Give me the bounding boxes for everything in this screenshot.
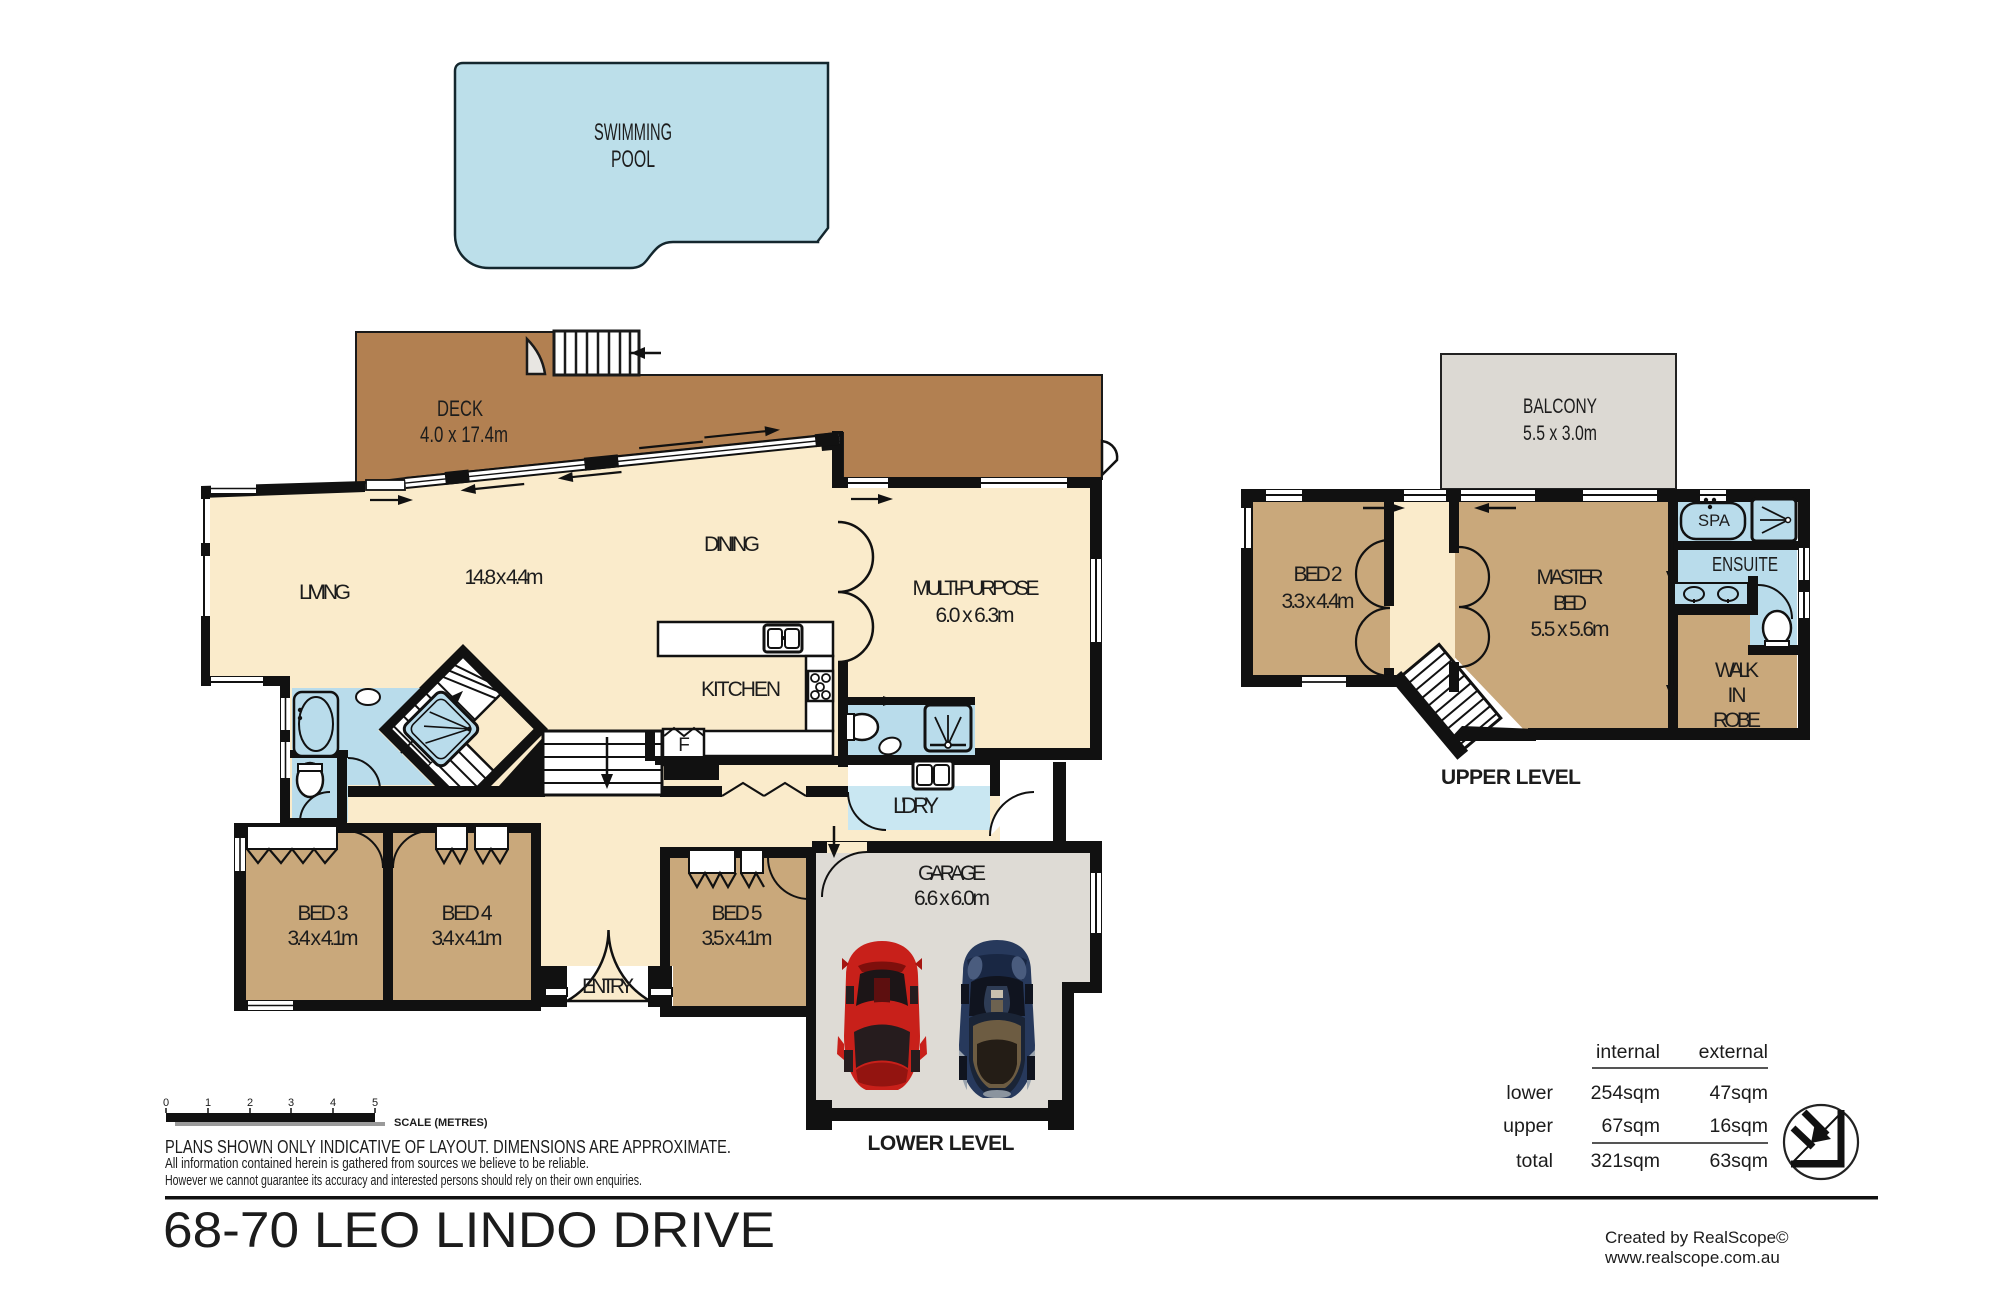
svg-text:67sqm: 67sqm <box>1601 1115 1660 1137</box>
svg-text:external: external <box>1699 1041 1768 1063</box>
svg-text:3.4 x 4.1m: 3.4 x 4.1m <box>288 927 359 950</box>
svg-text:Created by RealScope©: Created by RealScope© <box>1605 1228 1789 1247</box>
svg-text:16sqm: 16sqm <box>1709 1115 1768 1137</box>
svg-text:www.realscope.com.au: www.realscope.com.au <box>1604 1248 1780 1267</box>
svg-text:254sqm: 254sqm <box>1591 1082 1660 1104</box>
svg-text:BED 3: BED 3 <box>298 902 349 925</box>
svg-text:upper: upper <box>1503 1115 1553 1137</box>
svg-text:However we cannot guarantee it: However we cannot guarantee its accuracy… <box>165 1173 642 1189</box>
svg-text:3: 3 <box>288 1097 294 1109</box>
svg-text:BED 4: BED 4 <box>442 902 493 925</box>
svg-text:ENSUITE: ENSUITE <box>1712 554 1778 576</box>
svg-text:14.8 x 4.4m: 14.8 x 4.4m <box>465 566 544 589</box>
svg-text:4: 4 <box>330 1097 336 1109</box>
svg-text:6.0 x 6.3m: 6.0 x 6.3m <box>936 604 1015 627</box>
svg-text:GARAGE: GARAGE <box>918 862 986 885</box>
svg-text:5.5 x 3.0m: 5.5 x 3.0m <box>1523 422 1597 445</box>
svg-text:POOL: POOL <box>611 146 655 173</box>
svg-text:MULTI-PURPOSE: MULTI-PURPOSE <box>913 577 1040 600</box>
svg-text:5: 5 <box>372 1097 378 1109</box>
svg-text:BED: BED <box>1553 592 1587 615</box>
svg-text:3.5 x 4.1m: 3.5 x 4.1m <box>702 927 773 950</box>
svg-text:6.6 x 6.0m: 6.6 x 6.0m <box>914 887 990 910</box>
svg-text:68-70 LEO LINDO DRIVE: 68-70 LEO LINDO DRIVE <box>163 1202 775 1258</box>
svg-text:BED 5: BED 5 <box>712 902 763 925</box>
svg-text:ENTRY: ENTRY <box>582 975 634 998</box>
svg-text:F: F <box>678 735 690 756</box>
svg-text:DECK: DECK <box>437 396 483 421</box>
svg-text:total: total <box>1516 1150 1553 1172</box>
svg-text:3.4 x 4.1m: 3.4 x 4.1m <box>432 927 503 950</box>
svg-text:5.5 x 5.6m: 5.5 x 5.6m <box>1531 618 1610 641</box>
svg-text:internal: internal <box>1596 1041 1660 1063</box>
svg-text:3.3 x 4.4m: 3.3 x 4.4m <box>1282 590 1355 613</box>
svg-text:BALCONY: BALCONY <box>1523 395 1597 418</box>
svg-text:UPPER LEVEL: UPPER LEVEL <box>1441 766 1581 789</box>
svg-text:LIVING: LIVING <box>299 581 351 604</box>
svg-text:SCALE (METRES): SCALE (METRES) <box>394 1117 488 1129</box>
svg-text:BED 2: BED 2 <box>1294 563 1343 586</box>
svg-text:321sqm: 321sqm <box>1591 1150 1660 1172</box>
svg-text:47sqm: 47sqm <box>1709 1082 1768 1104</box>
svg-text:4.0 x 17.4m: 4.0 x 17.4m <box>420 422 508 447</box>
svg-text:L'DRY: L'DRY <box>893 793 939 818</box>
svg-text:lower: lower <box>1506 1082 1553 1104</box>
svg-text:1: 1 <box>205 1097 211 1109</box>
svg-text:IN: IN <box>1728 684 1747 707</box>
svg-text:DINING: DINING <box>704 533 760 556</box>
svg-text:SWIMMING: SWIMMING <box>594 119 672 146</box>
svg-text:LOWER LEVEL: LOWER LEVEL <box>868 1132 1015 1155</box>
svg-text:SPA: SPA <box>1698 511 1731 530</box>
svg-text:0: 0 <box>163 1097 169 1109</box>
svg-text:PLANS SHOWN ONLY INDICATIVE OF: PLANS SHOWN ONLY INDICATIVE OF LAYOUT. D… <box>165 1137 731 1157</box>
svg-text:63sqm: 63sqm <box>1709 1150 1768 1172</box>
svg-text:KITCHEN: KITCHEN <box>701 678 781 701</box>
svg-text:All information contained here: All information contained herein is gath… <box>165 1156 589 1172</box>
svg-text:MASTER: MASTER <box>1537 566 1604 589</box>
svg-text:ROBE: ROBE <box>1713 709 1761 732</box>
svg-text:WALK: WALK <box>1715 659 1759 682</box>
svg-text:2: 2 <box>247 1097 253 1109</box>
